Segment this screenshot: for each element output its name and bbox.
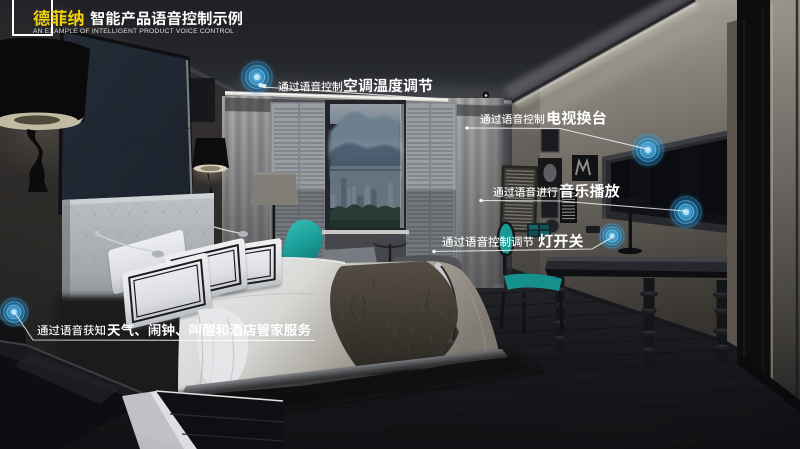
svg-text:AN EXAMPLE OF INTELLIGENT PROD: AN EXAMPLE OF INTELLIGENT PRODUCT VOICE … <box>33 28 234 35</box>
